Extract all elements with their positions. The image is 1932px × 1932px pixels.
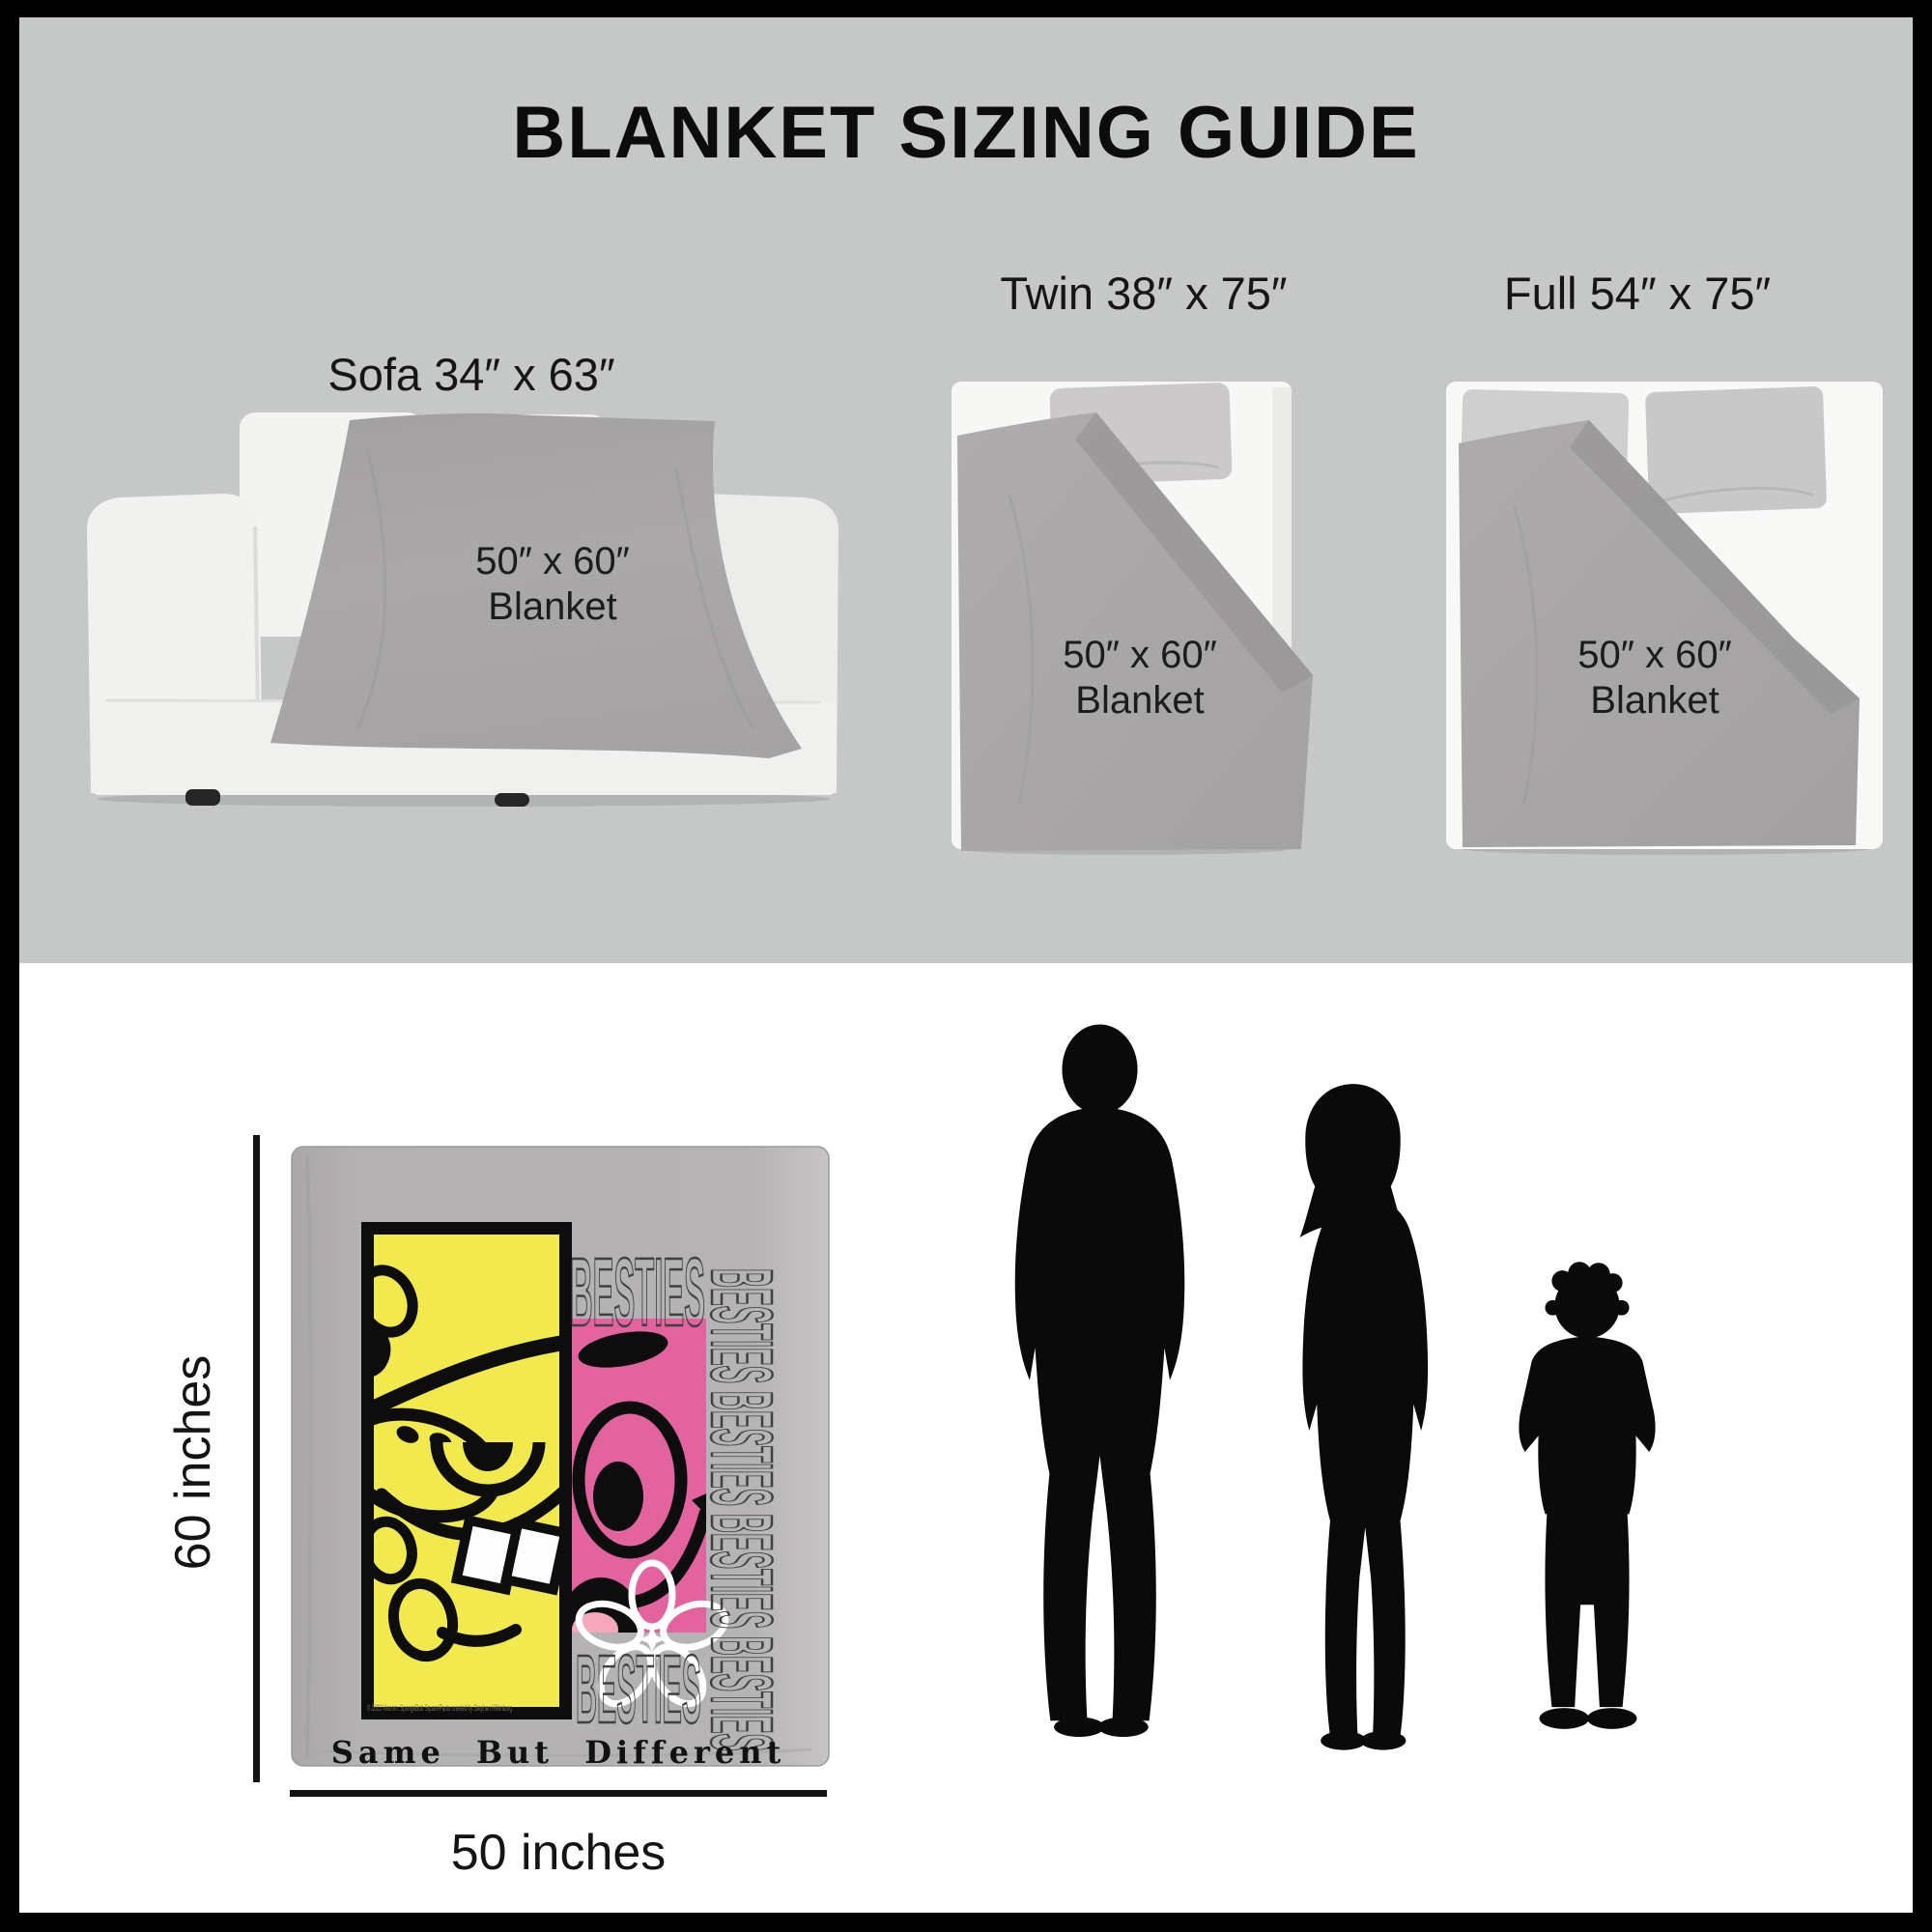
height-dimension-line	[253, 1135, 260, 1782]
width-dimension-line	[290, 1790, 827, 1797]
full-size-label: Full 54″ x 75″	[1444, 269, 1831, 319]
besties-vertical-text: BESTIES BESTIES BESTIES BESTIES	[693, 1268, 789, 1751]
page-title: BLANKET SIZING GUIDE	[290, 97, 1642, 170]
full-pillow-right	[1645, 386, 1827, 514]
full-blanket-size-text: 50″ x 60″ Blanket	[1510, 633, 1800, 724]
sofa-size-label: Sofa 34″ x 63″	[278, 350, 665, 400]
besties-bottom-text: BESTIES	[576, 1635, 701, 1744]
woman-silhouette-icon	[1230, 1080, 1476, 1744]
scale-section: 60 inches 50 inches	[19, 963, 1913, 1913]
twin-blanket-size-text: 50″ x 60″ Blanket	[995, 633, 1285, 724]
full-bed-illustration	[1446, 380, 1886, 853]
blanket-sizing-guide-infographic: BLANKET SIZING GUIDE Sofa 34″ x 63″ Twin…	[0, 0, 1932, 1932]
man-silhouette-icon	[965, 1024, 1235, 1744]
besties-top-text: BESTIES	[570, 1238, 705, 1347]
twin-blanket-word: Blanket	[995, 678, 1285, 724]
comparison-section: BLANKET SIZING GUIDE Sofa 34″ x 63″ Twin…	[19, 17, 1913, 963]
sofa-blanket-size-text: 50″ x 60″ Blanket	[408, 539, 697, 630]
spongebob-panel	[332, 1222, 572, 1719]
sofa-blanket-word: Blanket	[408, 584, 697, 630]
blanket-product-image: BESTIES BESTIES BESTIES BESTIES BESTIES …	[290, 1145, 831, 1768]
height-dimension-label: 60 inches	[164, 1318, 222, 1607]
tagline-text: Same But Different	[331, 1734, 786, 1771]
boy-silhouette-icon	[1501, 1256, 1673, 1744]
twin-bed-illustration	[952, 380, 1319, 853]
copyright-line: © 2023 Viacom. SpongeBob SquarePants cre…	[367, 1703, 512, 1713]
twin-size-label: Twin 38″ x 75″	[951, 269, 1337, 319]
sofa-blanket-size: 50″ x 60″	[408, 539, 697, 584]
full-blanket-word: Blanket	[1510, 678, 1800, 724]
twin-blanket-size: 50″ x 60″	[995, 633, 1285, 678]
full-blanket-size: 50″ x 60″	[1510, 633, 1800, 678]
width-dimension-label: 50 inches	[413, 1824, 703, 1882]
